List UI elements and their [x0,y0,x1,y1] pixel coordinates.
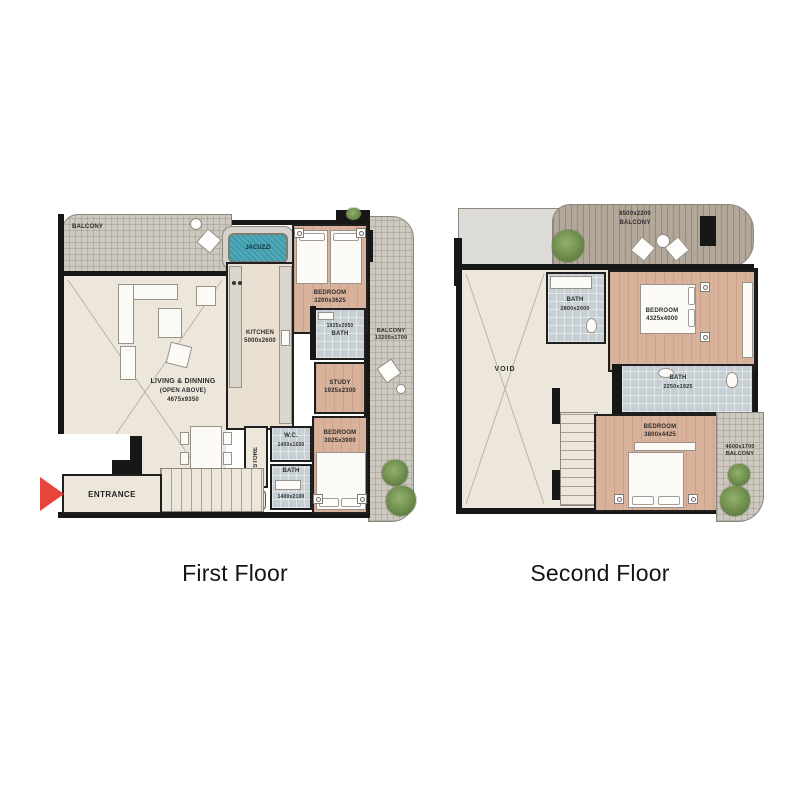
ff-bedroom-bottom-mark-right [357,494,367,504]
ff-dining-chair-2 [223,432,232,445]
ff-balcony-table [190,218,202,230]
first-floor-plan: BALCONY BALCONY 13200x1700 LIVING & DINN… [0,0,430,560]
sf-bath-top-tub [550,276,592,289]
ff-bath-top-name: BATH [331,331,348,337]
ff-armchair-1 [196,286,216,306]
sf-bedroom-top-mark-1 [700,282,710,292]
sf-bedroom-top-name: BEDROOM [646,308,679,314]
sf-bath-mid-label: BATH 2250x1925 [640,374,716,391]
sf-balcony-top-label: 8500x2200 BALCONY [570,210,700,227]
ff-stairs [160,468,264,512]
ff-bath-top-wall [310,306,316,360]
ff-bath-bottom-tub [275,480,301,490]
ff-plant-2 [386,486,416,516]
ff-bedroom-bottom-label: BEDROOM 3025x3900 [310,430,370,445]
ff-balcony-right-dims: 13200x1700 [375,335,408,341]
ff-bedroom-bottom-mark-left [313,494,323,504]
ff-kitchen-name: KITCHEN [246,330,274,336]
ff-balcony-right-label: BALCONY 13200x1700 [368,328,414,342]
ff-wc-label: W.C. 1400x1550 [270,432,312,449]
ff-bedroom-top-label: BEDROOM 3200x3625 [296,290,364,305]
sf-bedroom-top-label: BEDROOM 4325x4000 [622,308,702,323]
sf-bedroom-bottom-dims: 3800x4425 [644,432,676,438]
ff-dining-table [190,426,222,472]
ff-balcony-top-label: BALCONY [72,224,122,232]
sf-bedroom-bottom-pillow-1 [632,496,654,505]
ff-notch-wall-h [112,460,132,474]
sf-bath-top-dims: 2800x2000 [560,306,589,312]
ff-entrance-arrow [40,477,64,511]
sf-bath-mid-name: BATH [669,375,686,381]
ff-sofa-left [118,284,134,344]
ff-wc-name: W.C. [284,433,298,439]
sf-balcony-top-dark-rect [700,216,716,246]
ff-bedroom-bottom-name: BEDROOM [324,430,357,436]
ff-bath-top-sink [318,312,334,320]
sf-bath-top-label: BATH 2800x2000 [544,296,606,313]
sf-balcony-right-name: BALCONY [726,451,755,457]
sf-bedroom-top-mark-2 [700,332,710,342]
sf-stairs [560,412,598,506]
sf-bath-top-name: BATH [566,297,583,303]
sf-bath-mid-wall-left [612,364,622,414]
sf-balcony-right-label: 4600x1700 BALCONY [714,444,766,458]
ff-kitchen-label: KITCHEN 5000x2600 [226,330,294,345]
ff-cooktop-dot-1 [232,281,236,285]
ff-study-name: STUDY [329,380,350,386]
ff-bath-bottom-name: BATH [270,468,312,476]
ff-bedroom-bottom-dims: 3025x3900 [324,438,356,444]
ff-coffee-table [158,308,182,338]
sf-balcony-right-dims: 4600x1700 [725,444,754,450]
ff-chaise [120,346,136,380]
ff-bedroom-top-mark-right [356,228,366,238]
ff-bedroom-top-name: BEDROOM [314,290,347,296]
ff-entrance-label: ENTRANCE [88,490,136,499]
sf-bedroom-bottom-label: BEDROOM 3800x4425 [615,424,705,439]
first-floor-caption: First Floor [95,560,375,587]
ff-cooktop-dot-2 [238,281,242,285]
sf-bedroom-bottom-mark-2 [688,494,698,504]
ff-study-dims: 1925x2300 [324,388,356,394]
sf-bedroom-bottom-pillow-2 [658,496,680,505]
ff-bath-top-label: 1925x2050 BATH [316,322,364,339]
ff-bath-bottom-dims: 1400x2100 [270,494,312,500]
second-floor-caption: Second Floor [460,560,740,587]
ff-bedroom-top-dims: 3200x3625 [314,298,346,304]
sf-bedroom-top-dims: 4325x4000 [646,316,678,322]
second-floor-plan: 8500x2200 BALCONY VOID BATH 2800x20 [430,0,800,560]
ff-balcony-right-table [396,384,406,394]
ff-bedroom-top-mark-left [294,228,304,238]
sf-void [462,270,548,508]
sf-balcony-top-dims: 8500x2200 [619,211,651,217]
sf-void-label: VOID [462,366,548,375]
sf-roof-area [458,208,564,268]
sf-bath-mid-dims: 2250x1925 [663,384,692,390]
sf-hall-wall-chunk-1 [552,388,560,424]
sf-bedroom-bottom-dresser [634,442,696,451]
ff-jacuzzi-label: JACUZZI [245,245,270,251]
ff-wc-dims: 1400x1550 [278,442,305,448]
floorplan-canvas: BALCONY BALCONY 13200x1700 LIVING & DINN… [0,0,800,800]
ff-dining-chair-4 [223,452,232,465]
ff-entrance-corridor: ENTRANCE [62,474,162,514]
ff-living-note: (OPEN ABOVE) [160,388,206,394]
sf-bedroom-top-wardrobe [742,282,753,358]
ff-balcony-right-name: BALCONY [377,328,406,334]
ff-dining-chair-1 [180,432,189,445]
ff-store-label: STORE [253,447,259,468]
sf-bedroom-top-pillow-1 [688,287,695,305]
sf-balcony-top-name: BALCONY [619,220,650,226]
ff-living-name: LIVING & DINNING [150,378,215,385]
sf-bath-top-toilet [586,318,597,333]
ff-bath-top-dims: 1925x2050 [327,323,354,329]
sf-hall-wall-chunk-2 [552,470,560,500]
sf-bedroom-bottom-mark-1 [614,494,624,504]
ff-kitchen-dims: 5000x2600 [244,338,276,344]
ff-jacuzzi: JACUZZI [228,233,288,263]
ff-study-label: STUDY 1925x2300 [314,380,366,395]
sf-bedroom-bottom-name: BEDROOM [644,424,677,430]
ff-dining-chair-3 [180,452,189,465]
ff-living-dims: 4675x9350 [167,397,199,403]
sf-bath-mid-toilet [726,372,738,388]
